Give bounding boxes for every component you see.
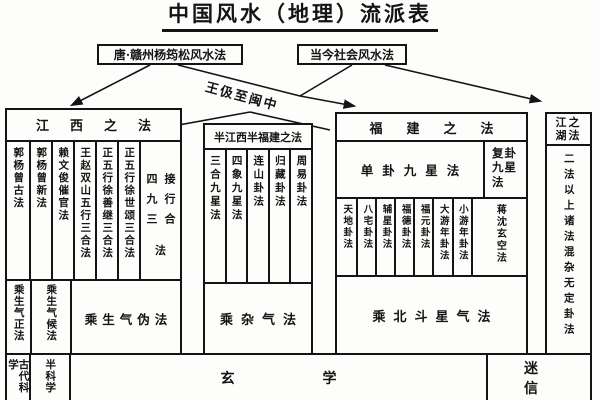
arrow-label-wangji: 王伋至闽中 bbox=[204, 76, 281, 114]
class-ancient-science: 古代科学 bbox=[7, 355, 29, 400]
jianghu-body: 二法以上诸法混杂无定卦法 bbox=[547, 146, 590, 353]
method-label: 蒋沈玄空法 bbox=[494, 204, 504, 264]
qi-cell-correct: 乘生气正法 bbox=[7, 281, 30, 353]
qi-label: 乘生气正法 bbox=[13, 284, 24, 342]
wide-column-lines: 四九三 接行合 bbox=[146, 173, 175, 233]
chart-title: 中国风水（地理）流派表 bbox=[162, 0, 438, 32]
block-mixed: 半江西半福建之法 三合九星法 四象九星法 连山卦法 归藏卦法 周易卦法 乘杂气法 bbox=[203, 123, 313, 353]
classification-row: 古代科学 半科学 玄学 迷信 bbox=[5, 353, 592, 400]
jiangxi-col-5: 正五行徐善继三合法 bbox=[95, 142, 117, 279]
jianghu-description: 二法以上诸法混杂无定卦法 bbox=[563, 153, 574, 353]
method-label: 连山卦法 bbox=[253, 155, 264, 209]
jianghu-header-line1: 江之 bbox=[556, 116, 582, 129]
subheader-single-gua: 单卦九星法 bbox=[337, 142, 485, 197]
fujian-col-1: 天地卦法 bbox=[337, 199, 356, 275]
class-label: 半科学 bbox=[45, 359, 56, 394]
method-label: 郭杨曾古法 bbox=[13, 147, 24, 210]
block-fujian: 福建之法 单卦九星法 复卦九星法 天地卦法 八宅卦法 辅星卦法 福德卦法 福元卦… bbox=[335, 112, 528, 353]
qi-cell-middle: 乘生气候法 bbox=[30, 281, 70, 353]
method-label: 四象九星法 bbox=[231, 155, 242, 223]
fujian-subheaders: 单卦九星法 复卦九星法 bbox=[337, 142, 526, 199]
class-semi-science: 半科学 bbox=[29, 355, 69, 400]
method-label: 正五行徐世颂三合法 bbox=[124, 147, 135, 260]
fujian-columns: 天地卦法 八宅卦法 辅星卦法 福德卦法 福元卦法 大游年卦法 小游年卦法 蒋沈玄… bbox=[337, 199, 526, 275]
method-label: 大游年卦法 bbox=[438, 204, 448, 262]
jiangxi-header: 江西之法 bbox=[7, 110, 180, 142]
mixed-qi-cell: 乘杂气法 bbox=[205, 282, 311, 353]
jiangxi-col-4: 王赵双山五行三合法 bbox=[73, 142, 95, 279]
method-label: 辅星卦法 bbox=[381, 204, 391, 250]
mixed-col-1: 三合九星法 bbox=[205, 150, 225, 282]
fujian-header: 福建之法 bbox=[337, 114, 526, 142]
arrow-to-jianghu bbox=[385, 65, 540, 101]
method-label: 福元卦法 bbox=[419, 204, 429, 250]
method-label: 福德卦法 bbox=[400, 204, 410, 250]
mixed-col-3: 连山卦法 bbox=[246, 150, 268, 282]
arrow-to-fujian bbox=[300, 96, 354, 106]
jianghu-header-line2: 湖法 bbox=[556, 129, 582, 142]
origin-box-modern-society: 当今社会风水法 bbox=[297, 44, 407, 65]
method-label: 归藏卦法 bbox=[274, 155, 285, 209]
fujian-qi-cell: 乘北斗星气法 bbox=[337, 275, 526, 353]
method-label: 周易卦法 bbox=[296, 155, 307, 209]
fengshui-schools-chart: 中国风水（地理）流派表 唐·赣州杨筠松风水法 当今社会风水法 王伋至闽中 江西之… bbox=[0, 0, 600, 400]
qi-cell-false: 乘生气伪法 bbox=[70, 281, 180, 353]
jiangxi-col-6: 正五行徐世颂三合法 bbox=[117, 142, 139, 279]
fujian-col-3: 辅星卦法 bbox=[375, 199, 394, 275]
arrow-to-jiangxi bbox=[72, 65, 150, 105]
jiangxi-col-2: 郭杨曾新法 bbox=[29, 142, 51, 279]
method-label: 郭杨曾新法 bbox=[36, 147, 47, 210]
method-label-tail: 法 bbox=[155, 242, 166, 258]
class-metaphysics: 玄学 bbox=[69, 355, 486, 400]
block-jiangxi: 江西之法 郭杨曾古法 郭杨曾新法 赖文俊催官法 王赵双山五行三合法 正五行徐善继… bbox=[5, 108, 182, 353]
method-label: 小游年卦法 bbox=[457, 204, 467, 262]
mixed-col-5: 周易卦法 bbox=[289, 150, 311, 282]
mixed-columns: 三合九星法 四象九星法 连山卦法 归藏卦法 周易卦法 bbox=[205, 150, 311, 282]
jiangxi-col-wide: 四九三 接行合 法 bbox=[139, 142, 180, 279]
mixed-col-4: 归藏卦法 bbox=[268, 150, 290, 282]
line-from-modern-box bbox=[300, 65, 352, 96]
jiangxi-qi-row: 乘生气正法 乘生气候法 乘生气伪法 bbox=[7, 279, 180, 353]
fujian-col-5: 福元卦法 bbox=[413, 199, 432, 275]
origin-box-yang-yunsong: 唐·赣州杨筠松风水法 bbox=[97, 44, 243, 65]
qi-label: 乘生气候法 bbox=[46, 284, 57, 342]
fujian-col-2: 八宅卦法 bbox=[356, 199, 375, 275]
method-label: 四九三 bbox=[146, 173, 157, 233]
class-label: 古代科学 bbox=[8, 359, 29, 400]
fujian-col-4: 福德卦法 bbox=[394, 199, 413, 275]
method-label: 王赵双山五行三合法 bbox=[80, 147, 91, 260]
method-label: 接行合 bbox=[164, 173, 175, 233]
jiangxi-col-3: 赖文俊催官法 bbox=[51, 142, 73, 279]
jiangxi-columns: 郭杨曾古法 郭杨曾新法 赖文俊催官法 王赵双山五行三合法 正五行徐善继三合法 正… bbox=[7, 142, 180, 279]
method-label: 赖文俊催官法 bbox=[58, 147, 69, 222]
class-superstition: 迷信 bbox=[486, 355, 590, 400]
method-label: 八宅卦法 bbox=[362, 204, 372, 250]
fujian-col-7: 小游年卦法 bbox=[452, 199, 471, 275]
jianghu-header: 江之 湖法 bbox=[547, 114, 590, 146]
fujian-col-6: 大游年卦法 bbox=[432, 199, 451, 275]
mixed-col-2: 四象九星法 bbox=[225, 150, 247, 282]
jiangxi-col-1: 郭杨曾古法 bbox=[7, 142, 29, 279]
block-jianghu: 江之 湖法 二法以上诸法混杂无定卦法 bbox=[545, 112, 592, 353]
method-label: 三合九星法 bbox=[210, 155, 221, 223]
method-label: 正五行徐善继三合法 bbox=[102, 147, 113, 260]
fujian-col-xuankong: 蒋沈玄空法 bbox=[471, 199, 526, 275]
mixed-header: 半江西半福建之法 bbox=[205, 125, 311, 150]
method-label: 天地卦法 bbox=[342, 204, 352, 250]
subheader-compound-gua: 复卦九星法 bbox=[485, 142, 526, 197]
